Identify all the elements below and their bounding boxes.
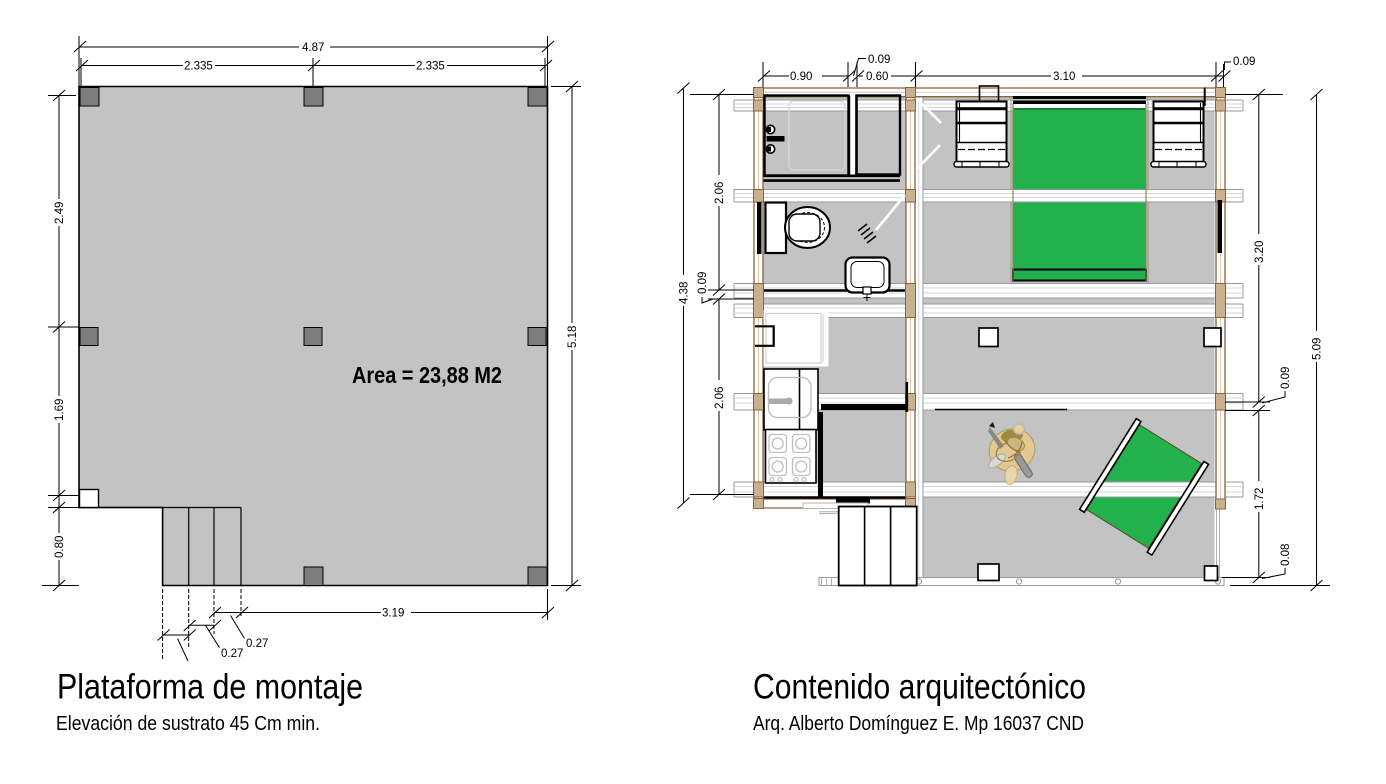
- svg-text:0.90: 0.90: [790, 71, 812, 83]
- svg-text:3.20: 3.20: [1254, 241, 1266, 263]
- svg-text:1.69: 1.69: [54, 399, 66, 421]
- svg-text:Plataforma de montaje: Plataforma de montaje: [57, 668, 363, 707]
- svg-text:0.09: 0.09: [697, 272, 709, 294]
- svg-text:2.335: 2.335: [416, 61, 445, 73]
- svg-text:0.09: 0.09: [1233, 56, 1255, 68]
- svg-text:0.09: 0.09: [1280, 367, 1292, 389]
- svg-text:Area = 23,88 M2: Area = 23,88 M2: [352, 362, 502, 388]
- svg-text:5.09: 5.09: [1312, 338, 1324, 360]
- svg-text:0.80: 0.80: [54, 536, 66, 558]
- svg-text:0.08: 0.08: [1280, 544, 1292, 566]
- svg-text:0.27: 0.27: [221, 648, 243, 660]
- svg-text:2.49: 2.49: [54, 202, 66, 224]
- svg-text:2.06: 2.06: [714, 182, 726, 204]
- svg-text:4.87: 4.87: [302, 42, 324, 54]
- svg-text:0.27: 0.27: [246, 638, 268, 650]
- svg-text:1.72: 1.72: [1254, 488, 1266, 510]
- svg-text:5.18: 5.18: [567, 326, 579, 348]
- svg-text:Arq. Alberto Domínguez E. Mp 1: Arq. Alberto Domínguez E. Mp 16037 CND: [753, 712, 1084, 735]
- svg-text:2.335: 2.335: [184, 61, 213, 73]
- svg-text:3.19: 3.19: [382, 608, 404, 620]
- svg-text:0.09: 0.09: [868, 54, 890, 66]
- svg-text:4.38: 4.38: [679, 282, 691, 304]
- svg-text:Contenido arquitectónico: Contenido arquitectónico: [753, 668, 1086, 707]
- svg-text:Elevación de sustrato 45 Cm mi: Elevación de sustrato 45 Cm min.: [56, 712, 320, 735]
- svg-text:3.10: 3.10: [1053, 71, 1075, 83]
- svg-text:0.60: 0.60: [866, 71, 888, 83]
- svg-text:2.06: 2.06: [714, 387, 726, 409]
